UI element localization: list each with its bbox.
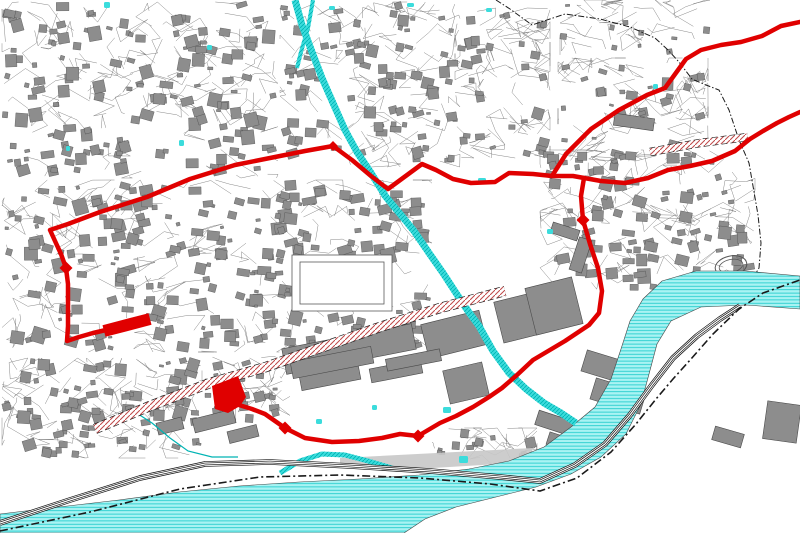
- pond: [459, 456, 468, 463]
- pond: [316, 419, 322, 424]
- pond: [372, 405, 377, 410]
- pond: [547, 229, 553, 234]
- pond: [179, 140, 184, 146]
- pond: [104, 2, 110, 8]
- map-viewport[interactable]: [0, 0, 800, 533]
- pond: [329, 6, 335, 10]
- city-map-canvas: [0, 0, 800, 533]
- large-building: [763, 401, 800, 443]
- pond: [486, 8, 492, 12]
- pond: [443, 407, 451, 413]
- pond: [653, 84, 658, 89]
- courtyard-blocks-layer: [292, 255, 392, 311]
- pond: [407, 3, 414, 7]
- pond: [66, 146, 70, 151]
- map-background: [0, 0, 800, 533]
- pond: [207, 45, 212, 50]
